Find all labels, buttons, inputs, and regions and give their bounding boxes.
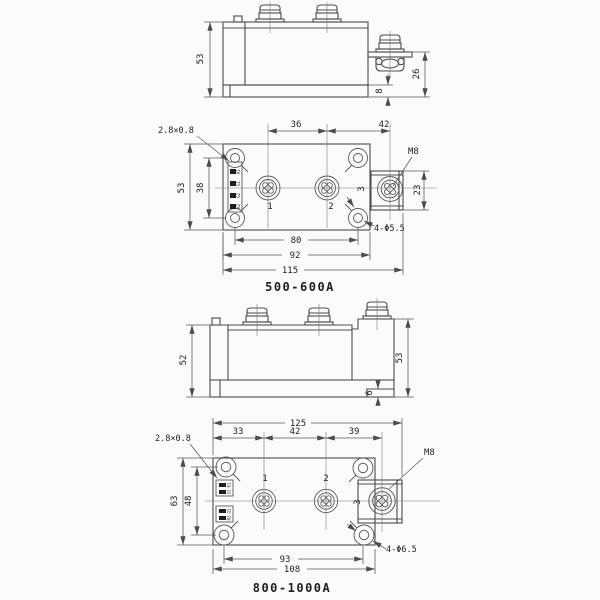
tab-label-g2: G2 <box>236 193 241 198</box>
technical-drawing-sheet: 53 26 8 <box>0 0 600 600</box>
dim-label-48: 48 <box>184 496 194 507</box>
dim-label-6: 6 <box>365 390 375 395</box>
top-view-500-600a: K1 G1 G2 K2 36 42 2.8×0.8 53 <box>158 120 437 294</box>
dim-label-63: 63 <box>170 496 180 507</box>
dim-label-26: 26 <box>412 69 422 80</box>
dim-label-33: 33 <box>233 427 244 437</box>
terminal-1-label: 1 <box>262 474 267 484</box>
dimension-height-53 <box>204 22 224 97</box>
tab-size-label: 2.8×0.8 <box>158 126 194 136</box>
terminal-bolts <box>243 302 391 325</box>
hole-leader-a <box>347 197 354 207</box>
tab-label-k1: K1 <box>236 169 241 174</box>
dim-label-23: 23 <box>413 185 423 196</box>
dim-label-93: 93 <box>280 555 291 565</box>
tab-label-g2: G2 <box>227 508 232 513</box>
dim-label-39: 39 <box>349 427 360 437</box>
dimension-height-52 <box>186 325 211 397</box>
mounting-holes-label: 4-Φ5.5 <box>374 224 405 234</box>
tab-size-label: 2.8×0.8 <box>155 434 191 444</box>
dim-label-108: 108 <box>284 565 300 575</box>
terminal-3-label: 3 <box>357 186 367 191</box>
module-outline <box>223 144 403 230</box>
side-view-500-600a: 53 26 8 <box>196 2 430 106</box>
dimension-height-63 <box>177 458 214 545</box>
tab-label-g1: G1 <box>227 489 232 494</box>
dim-label-42: 42 <box>379 120 390 130</box>
tab-label-g1: G1 <box>236 181 241 186</box>
control-tab-group-2: G2 K2 <box>216 506 233 522</box>
dim-label-53: 53 <box>177 183 187 194</box>
terminal-1-label: 1 <box>267 202 272 212</box>
terminal-2-label: 2 <box>328 202 333 212</box>
side-view-800-1000a: 52 53 6 <box>179 298 414 405</box>
dim-label-115: 115 <box>282 266 298 276</box>
module-outline <box>210 318 394 397</box>
drawing-canvas: 53 26 8 <box>0 0 600 600</box>
dim-label-42: 42 <box>290 427 301 437</box>
mounting-holes-label: 4-Φ6.5 <box>386 545 417 555</box>
power-terminals <box>256 176 402 201</box>
terminal-2-label: 2 <box>323 474 328 484</box>
dim-label-38: 38 <box>196 183 206 194</box>
dim-label-80: 80 <box>291 236 302 246</box>
control-tab-strip: K1 G1 G2 K2 <box>228 162 242 212</box>
top-view-800-1000a: K1 G1 G2 K2 125 <box>155 418 440 595</box>
dimension-115 <box>223 213 403 275</box>
terminal-3-label: 3 <box>353 499 363 504</box>
dim-label-8: 8 <box>375 88 385 93</box>
tab-label-k2: K2 <box>227 515 232 520</box>
caption-800-1000a: 800-1000A <box>253 581 332 595</box>
dim-label-52: 52 <box>179 355 189 366</box>
thread-label-m8: M8 <box>424 448 435 458</box>
m8-leader <box>389 458 423 489</box>
dim-label-53: 53 <box>395 353 405 364</box>
dim-label-36: 36 <box>291 120 302 130</box>
dim-label-53: 53 <box>196 54 206 65</box>
tab-size-leader <box>197 136 229 161</box>
control-tab-group-1: K1 G1 <box>216 480 233 496</box>
tab-label-k1: K1 <box>227 482 232 487</box>
dim-label-92: 92 <box>290 251 301 261</box>
caption-500-600a: 500-600A <box>265 280 335 294</box>
dimension-93 <box>224 546 363 564</box>
thread-label-m8: M8 <box>408 147 419 157</box>
tab-label-k2: K2 <box>236 204 241 209</box>
